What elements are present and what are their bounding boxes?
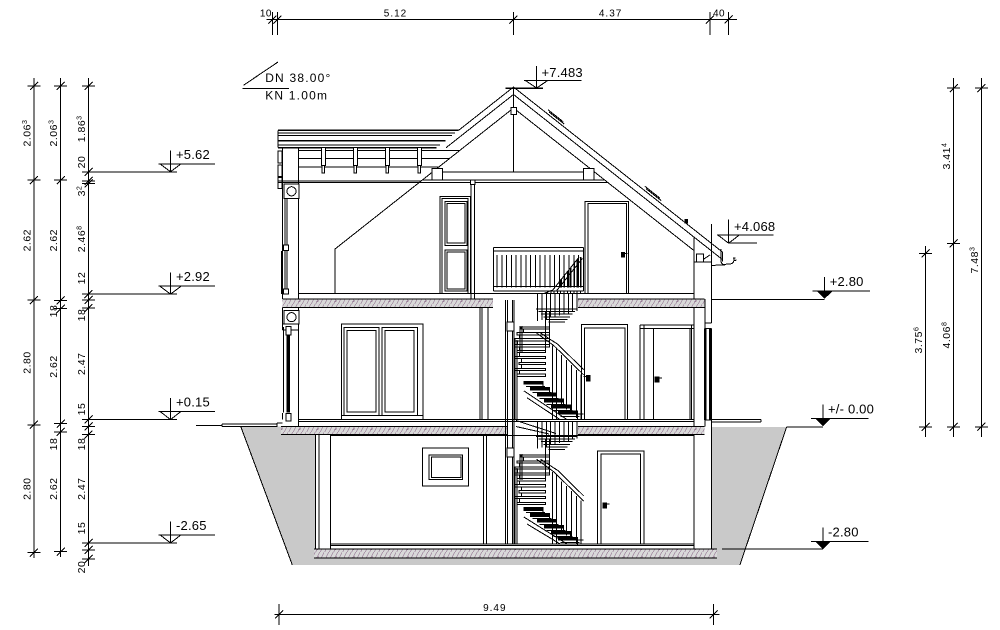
svg-text:15: 15 (76, 522, 88, 535)
svg-text:18: 18 (48, 305, 60, 318)
svg-text:+0.15: +0.15 (176, 395, 210, 410)
svg-text:+/- 0.00: +/- 0.00 (828, 402, 874, 417)
svg-text:20: 20 (76, 561, 88, 574)
svg-text:2.47: 2.47 (76, 353, 88, 375)
svg-text:9.49: 9.49 (483, 603, 506, 614)
svg-text:18: 18 (76, 438, 88, 451)
svg-text:2.62: 2.62 (48, 477, 60, 499)
svg-text:12: 12 (76, 272, 88, 285)
svg-text:+5.62: +5.62 (176, 147, 210, 162)
svg-text:4.37: 4.37 (599, 8, 622, 19)
svg-text:+7.483: +7.483 (541, 65, 582, 80)
svg-text:2.80: 2.80 (21, 477, 33, 499)
svg-text:2.47: 2.47 (76, 477, 88, 499)
svg-text:+2.80: +2.80 (830, 274, 864, 289)
svg-text:2.62: 2.62 (48, 229, 60, 251)
svg-text:-2.80: -2.80 (828, 525, 859, 540)
svg-text:5.12: 5.12 (384, 8, 407, 19)
svg-text:18: 18 (48, 438, 60, 451)
svg-text:KN 1.00m: KN 1.00m (265, 89, 328, 103)
svg-text:20: 20 (76, 156, 88, 169)
svg-text:10: 10 (260, 8, 272, 19)
svg-text:-2.65: -2.65 (176, 518, 207, 533)
svg-text:2.80: 2.80 (21, 351, 33, 373)
svg-text:+4.068: +4.068 (734, 219, 775, 234)
svg-text:15: 15 (76, 403, 88, 416)
svg-text:2.62: 2.62 (21, 229, 33, 251)
svg-text:40: 40 (713, 8, 725, 19)
svg-text:18: 18 (76, 309, 88, 322)
svg-text:DN 38.00°: DN 38.00° (265, 71, 331, 85)
svg-text:+2.92: +2.92 (176, 269, 210, 284)
svg-text:2.62: 2.62 (48, 355, 60, 377)
